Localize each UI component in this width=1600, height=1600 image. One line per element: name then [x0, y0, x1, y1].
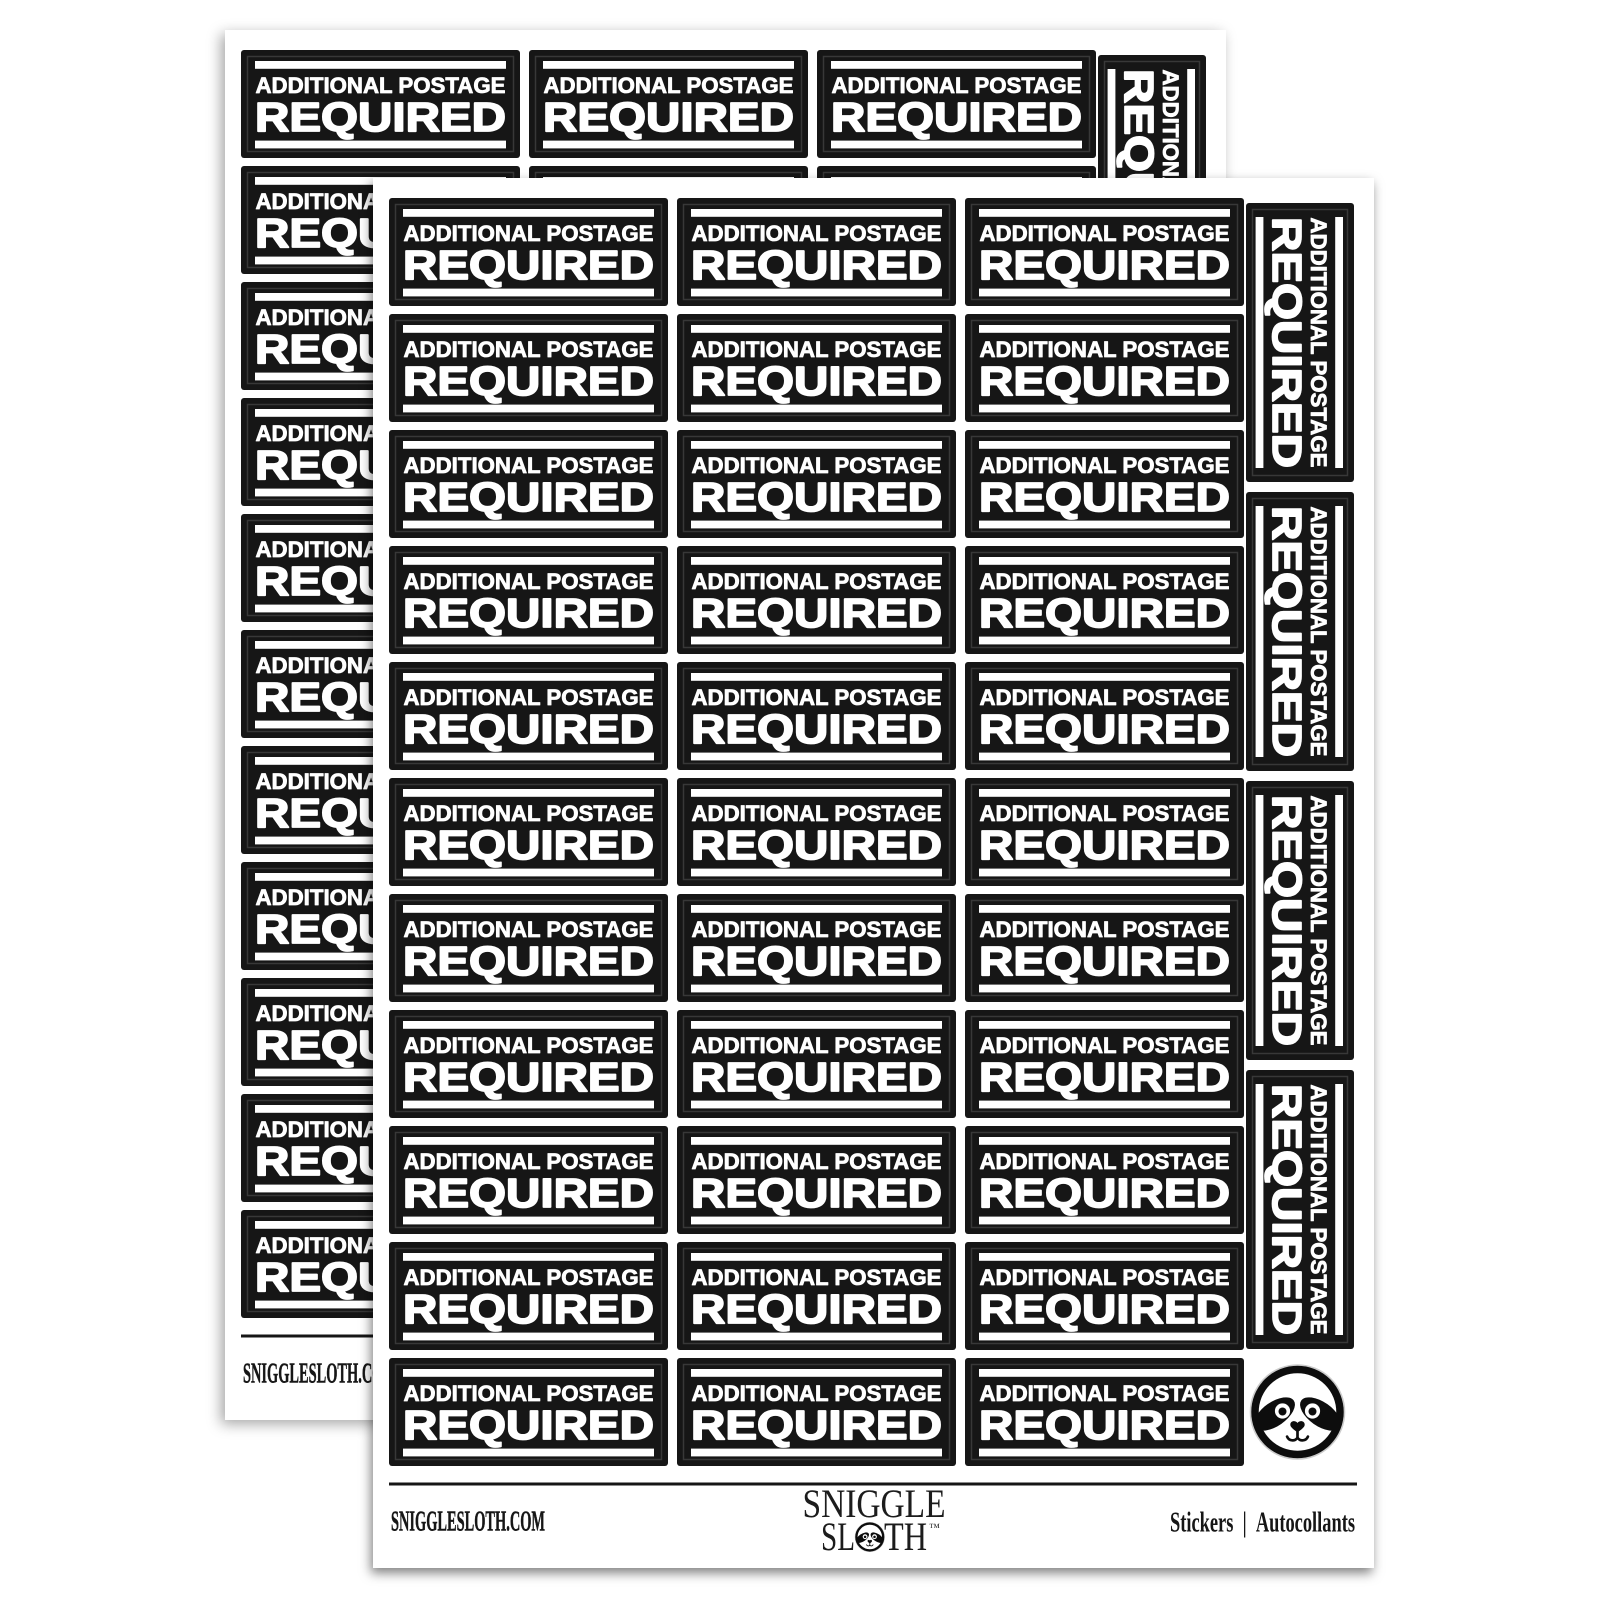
svg-text:SNIGGLESLOTH.COM: SNIGGLESLOTH.COM [391, 1507, 545, 1538]
svg-text:SL: SL [821, 1514, 855, 1559]
svg-text:TH: TH [884, 1514, 927, 1559]
svg-text:Stickers | Autocollants: Stickers | Autocollants [1170, 1507, 1355, 1539]
svg-text:™: ™ [929, 1522, 940, 1534]
